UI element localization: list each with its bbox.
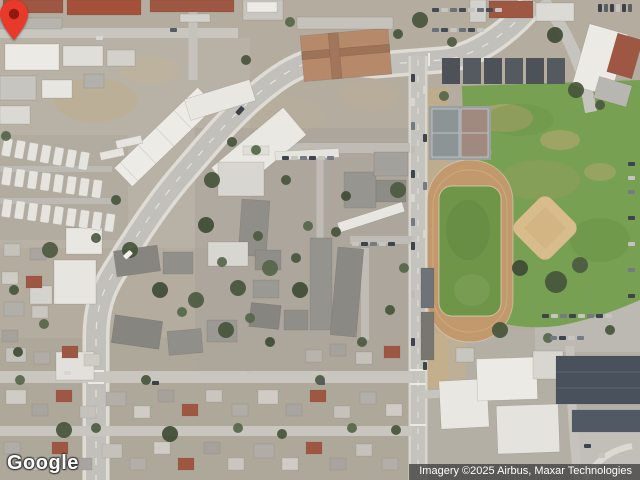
running-track xyxy=(427,160,513,342)
attribution-text: Imagery ©2025 Airbus, Maxar Technologies xyxy=(419,465,632,477)
tennis-courts xyxy=(429,106,491,160)
google-logo[interactable]: Google xyxy=(7,452,79,475)
satellite-map-canvas[interactable]: Google Imagery ©2025 Airbus, Maxar Techn… xyxy=(0,0,640,480)
attribution-bar: Imagery ©2025 Airbus, Maxar Technologies xyxy=(409,464,640,480)
sports-complex xyxy=(427,80,640,342)
church-building xyxy=(300,28,392,81)
map-pin-icon[interactable] xyxy=(0,0,28,40)
satellite-imagery xyxy=(0,0,640,480)
